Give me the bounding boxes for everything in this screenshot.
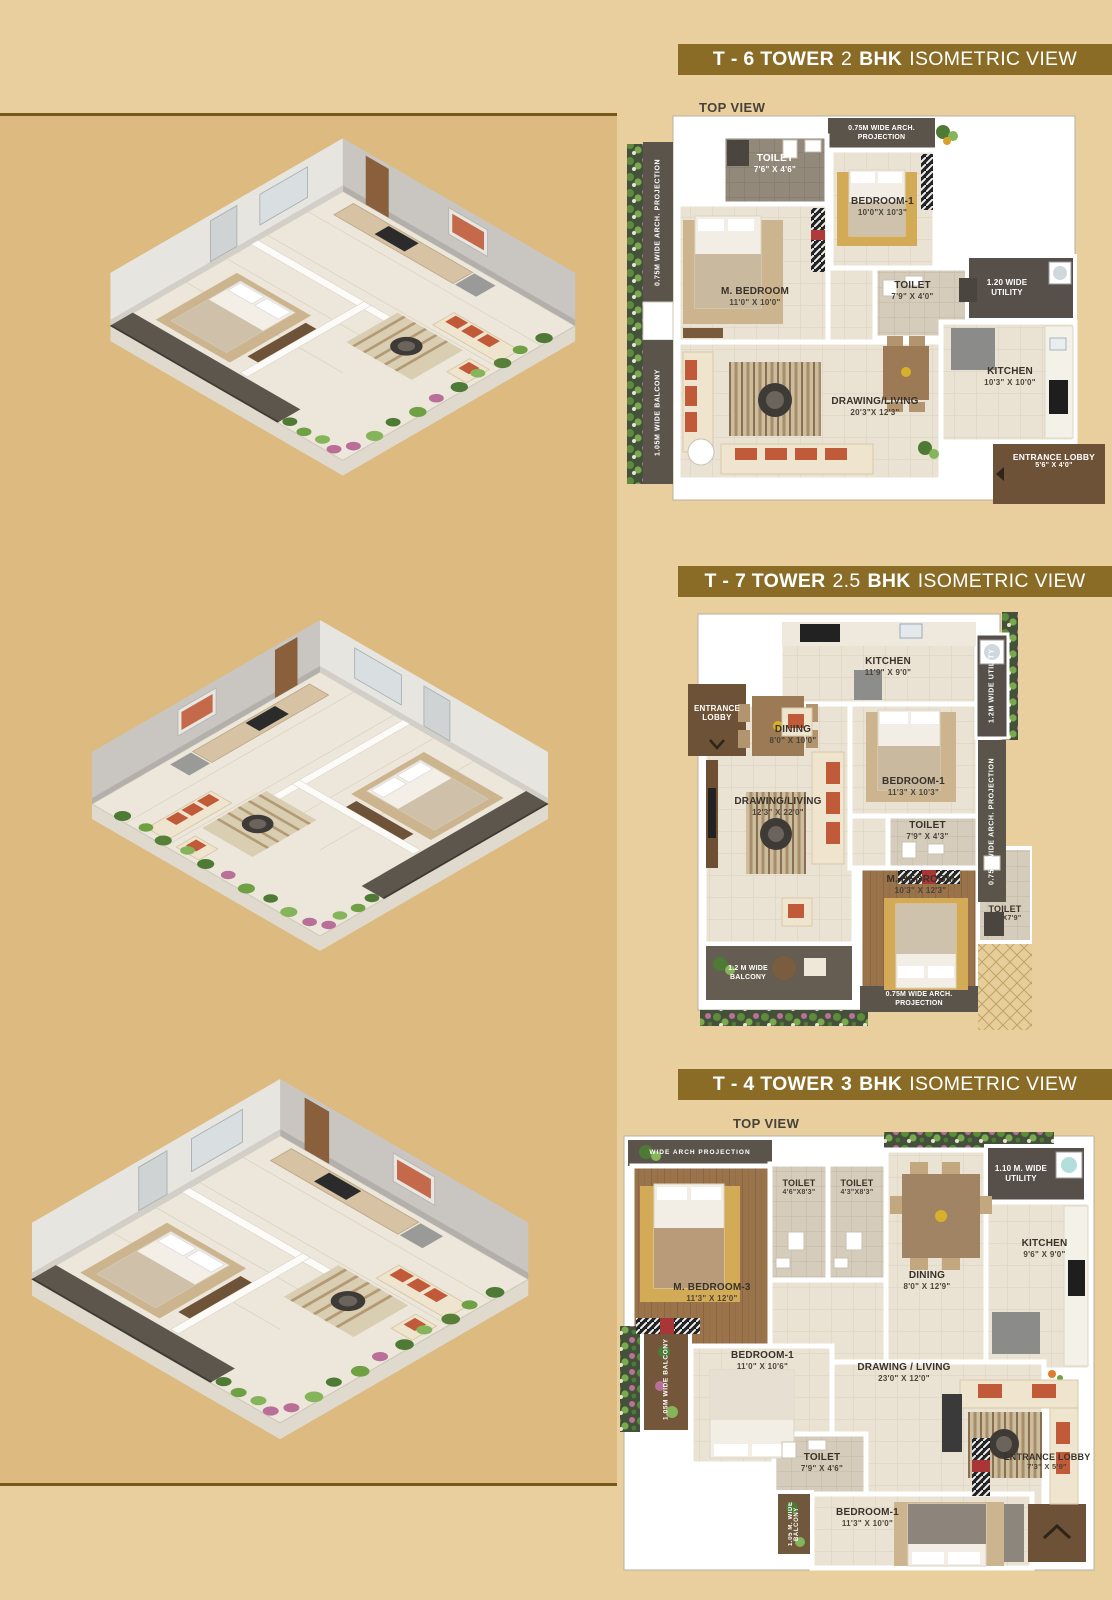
banner-t4: T - 4 TOWER 3 BHK ISOMETRIC VIEW (678, 1069, 1112, 1100)
strip-label-arch-bottom: 0.75M WIDE ARCH. PROJECTION (860, 986, 978, 1012)
iso-render-t6 (88, 130, 618, 543)
iso-render-t6-svg (88, 130, 618, 538)
room-label-entrance-lobby: ENTRANCE LOBBY 5'6" X 4'0" (1007, 452, 1101, 470)
strip-label-utility: 1.2M WIDE UTILITY (976, 634, 1008, 738)
banner-t4-view: ISOMETRIC VIEW (909, 1073, 1077, 1096)
brochure-page: T - 6 TOWER 2 BHK ISOMETRIC VIEW T - 7 T… (0, 0, 1112, 1600)
room-label-drawing-living: DRAWING / LIVING 23'0" X 12'0" (834, 1362, 974, 1383)
room-label-dining: DINING 8'0" X 12'9" (877, 1270, 977, 1291)
room-label-dining: DINING 8'0" X 10'0" (743, 724, 843, 745)
room-label-kitchen: KITCHEN 11'9" X 9'0" (838, 656, 938, 677)
banner-t7-tower: T - 7 TOWER (705, 570, 826, 593)
strip-label-utility: 1.20 WIDE UTILITY (969, 258, 1045, 318)
room-label-toilet-2: TOILET 4'6"X7'9" (976, 904, 1034, 923)
floorplan-t6: TOILET 7'6" X 4'6" BEDROOM-1 10'0"X 10'3… (625, 108, 1112, 510)
floorplan-t7: KITCHEN 11'9" X 9'0" DINING 8'0" X 10'0"… (688, 612, 1032, 1032)
banner-t7-bhk: BHK (868, 570, 911, 593)
room-label-drawing-living: DRAWING/LIVING 12'3" X 22'0" (718, 796, 838, 817)
room-label-toilet-bottom: TOILET 7'9" X 4'6" (777, 1452, 867, 1473)
iso-render-t4 (8, 1070, 574, 1511)
banner-t4-tower: T - 4 TOWER (713, 1073, 834, 1096)
room-label-bedroom-1-bottom: BEDROOM-1 11'3" X 10'0" (815, 1507, 920, 1528)
banner-t6-tower: T - 6 TOWER (713, 48, 834, 71)
strip-label-arch-top: 0.75M WIDE ARCH. PROJECTION (828, 118, 935, 148)
room-label-toilet-a: TOILET 4'6"X8'3" (770, 1178, 828, 1197)
banner-t4-bhk: BHK (859, 1073, 902, 1096)
room-label-bedroom-1: BEDROOM-1 11'3" X 10'3" (856, 776, 971, 797)
banner-t7-view: ISOMETRIC VIEW (918, 570, 1086, 593)
room-label-entrance-lobby: ENTRANCE LOBBY (690, 704, 744, 723)
strip-label-arch-left: 0.75M WIDE ARCH. PROJECTION (643, 142, 673, 302)
room-label-drawing-living: DRAWING/LIVING 20'3"X 12'3" (810, 396, 940, 417)
banner-t6-size: 2 (841, 48, 852, 71)
strip-label-arch-top: WIDE ARCH PROJECTION (628, 1140, 772, 1166)
strip-label-utility: 1.10 M. WIDE UTILITY (986, 1148, 1056, 1200)
room-label-m-bedroom-3: M. BEDROOM-3 11'3" X 12'0" (647, 1282, 777, 1303)
banner-t7: T - 7 TOWER 2.5 BHK ISOMETRIC VIEW (678, 566, 1112, 597)
strip-label-balcony: 1.2 M WIDE BALCONY (708, 952, 788, 994)
room-label-kitchen: KITCHEN 9'6" X 9'0" (997, 1238, 1092, 1259)
room-label-m-bedroom: M. BEDROOM 10'3" X 12'3" (863, 874, 978, 895)
room-label-toilet-b: TOILET 4'3"X8'3" (828, 1178, 886, 1197)
room-label-entrance-lobby: ENTRANCE LOBBY 7'3" X 5'9" (997, 1452, 1097, 1471)
banner-t6-bhk: BHK (859, 48, 902, 71)
room-label-toilet-1: TOILET 7'6" X 4'6" (730, 153, 820, 174)
strip-label-balcony-left: 1.05M WIDE BALCONY (643, 340, 673, 484)
iso-render-t7-svg (50, 612, 570, 1012)
banner-t6: T - 6 TOWER 2 BHK ISOMETRIC VIEW (678, 44, 1112, 75)
iso-render-t4-svg (8, 1070, 574, 1506)
room-label-bedroom-1-left: BEDROOM-1 11'0" X 10'6" (690, 1350, 835, 1371)
banner-t6-view: ISOMETRIC VIEW (909, 48, 1077, 71)
floorplan-t4: M. BEDROOM-3 11'3" X 12'0" TOILET 4'6"X8… (612, 1112, 1112, 1592)
banner-t7-size: 2.5 (833, 570, 861, 593)
room-label-toilet-2: TOILET 7'9" X 4'0" (865, 280, 960, 301)
room-label-m-bedroom: M. BEDROOM 11'0" X 10'0" (700, 286, 810, 307)
room-label-kitchen: KITCHEN 10'3" X 10'0" (960, 366, 1060, 387)
iso-render-t7 (50, 612, 570, 1017)
room-label-bedroom-1: BEDROOM-1 10'0"X 10'3" (830, 196, 935, 217)
strip-label-balcony-bottom: 1.05 M. WIDE BALCONY (776, 1492, 812, 1556)
room-label-toilet-1: TOILET 7'9" X 4'3" (880, 820, 975, 841)
strip-label-balcony-left: 1.05M WIDE BALCONY (642, 1326, 690, 1432)
banner-t4-size: 3 (841, 1073, 852, 1096)
strip-label-arch-right: 0.75M WIDE ARCH. PROJECTION (978, 740, 1006, 902)
